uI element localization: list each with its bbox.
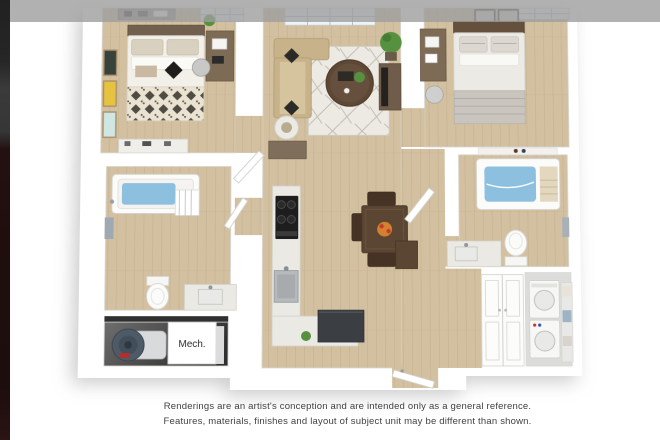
faucet xyxy=(208,285,212,289)
mech-label: Mech. xyxy=(178,339,205,350)
toilet-right xyxy=(505,230,527,265)
vanity-right xyxy=(447,241,501,267)
desk-chair xyxy=(425,86,443,103)
kitchen-island xyxy=(318,310,364,342)
dining-chair xyxy=(368,253,396,267)
tub-ledge xyxy=(478,148,557,155)
kitchen-sink xyxy=(274,266,298,302)
stove xyxy=(275,196,298,239)
door-handle xyxy=(400,369,403,372)
disclaimer-line-2: Features, materials, finishes and layout… xyxy=(35,414,660,429)
bath-mat xyxy=(540,167,558,202)
vanity-nook xyxy=(118,139,187,153)
heater-label xyxy=(120,353,130,358)
wall-art-frames xyxy=(103,50,117,137)
bathtub-left xyxy=(112,174,200,215)
table-plant xyxy=(354,72,365,83)
bathtub-right xyxy=(476,159,560,210)
mech-box: Mech. xyxy=(168,322,224,364)
media-console xyxy=(379,64,401,110)
console-low xyxy=(269,141,307,159)
bed-right xyxy=(454,21,526,123)
water-heater xyxy=(112,329,166,361)
shower-curtain xyxy=(175,190,199,215)
desk-chair xyxy=(192,59,210,76)
entry-hall xyxy=(402,269,482,368)
bedroom-right-doorway xyxy=(401,108,425,147)
tv xyxy=(381,68,388,107)
disclaimer: Renderings are an artist's conception an… xyxy=(35,399,660,429)
side-table-lamp xyxy=(275,116,299,139)
coffee-table xyxy=(326,60,373,106)
page-background: Mech. xyxy=(0,0,660,440)
linen-shelf xyxy=(561,282,573,362)
flower-centerpiece xyxy=(377,222,392,237)
towel xyxy=(562,217,569,237)
faucet xyxy=(464,243,468,247)
faucet xyxy=(284,266,289,271)
floor-plan-container: Mech. xyxy=(69,8,590,392)
bedroom-left-doorway xyxy=(235,116,263,153)
floor-plan-rendering: Mech. xyxy=(69,8,590,392)
counter-plant xyxy=(301,331,311,341)
dining-chair xyxy=(368,192,396,206)
bed-left xyxy=(127,25,205,121)
vanity-left xyxy=(184,284,236,310)
entry-closet-doors xyxy=(481,275,524,366)
dining-hutch xyxy=(396,241,418,269)
top-gray-bar xyxy=(0,0,660,22)
towel xyxy=(105,217,114,239)
toilet-left xyxy=(146,277,168,310)
disclaimer-line-1: Renderings are an artist's conception an… xyxy=(35,399,660,414)
left-edge-strip xyxy=(0,0,10,440)
